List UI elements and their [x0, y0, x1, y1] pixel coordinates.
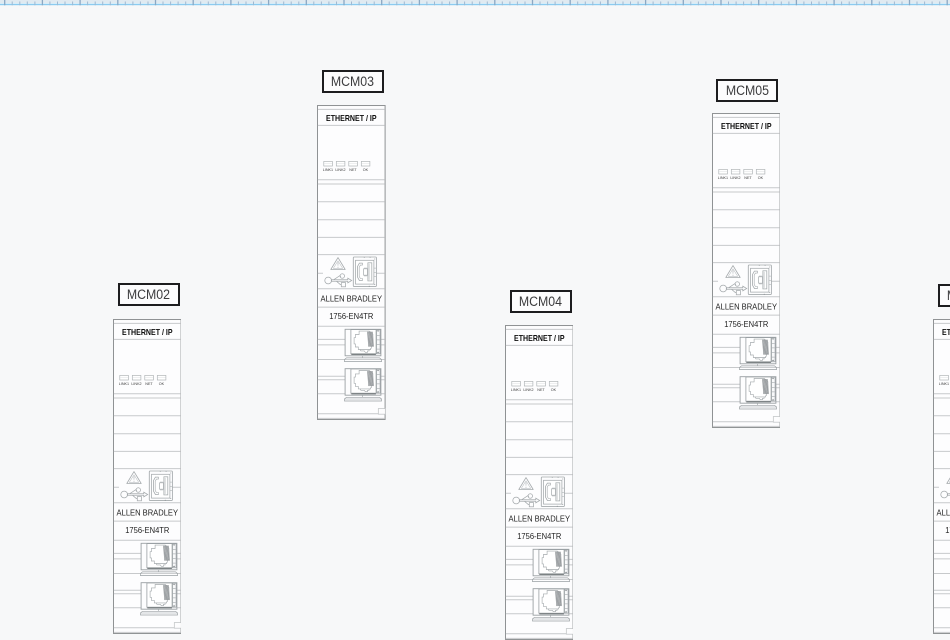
svg-text:LINK1: LINK1 — [119, 382, 129, 386]
svg-text:ETHERNET / IP: ETHERNET / IP — [721, 121, 772, 131]
svg-text:ETHERNET / IP: ETHERNET / IP — [514, 333, 565, 343]
svg-text:ALLEN BRADLEY: ALLEN BRADLEY — [936, 509, 950, 518]
svg-text:LINK2: LINK2 — [523, 388, 533, 392]
svg-text:ALLEN BRADLEY: ALLEN BRADLEY — [508, 515, 570, 524]
svg-text:NET: NET — [537, 388, 545, 392]
svg-text:OK: OK — [363, 168, 369, 172]
svg-text:OK: OK — [757, 176, 763, 180]
svg-text:1756-EN4TR: 1756-EN4TR — [945, 526, 950, 535]
svg-text:LINK2: LINK2 — [730, 176, 740, 180]
svg-text:LINK2: LINK2 — [131, 382, 141, 386]
svg-text:ALLEN BRADLEY: ALLEN BRADLEY — [116, 508, 178, 517]
svg-text:ETHERNET / IP: ETHERNET / IP — [326, 113, 377, 123]
svg-text:1756-EN4TR: 1756-EN4TR — [329, 312, 373, 321]
svg-text:LINK2: LINK2 — [336, 168, 346, 172]
svg-text:ALLEN BRADLEY: ALLEN BRADLEY — [321, 294, 383, 303]
svg-text:NET: NET — [349, 168, 357, 172]
svg-text:OK: OK — [159, 382, 165, 386]
svg-text:1756-EN4TR: 1756-EN4TR — [125, 525, 169, 534]
svg-text:1756-EN4TR: 1756-EN4TR — [724, 320, 768, 329]
svg-text:ALLEN BRADLEY: ALLEN BRADLEY — [715, 303, 777, 312]
svg-text:ETHERNET / IP: ETHERNET / IP — [942, 327, 950, 337]
svg-text:LINK1: LINK1 — [938, 382, 948, 386]
svg-text:NET: NET — [145, 382, 153, 386]
svg-text:LINK1: LINK1 — [510, 388, 520, 392]
svg-text:NET: NET — [744, 176, 752, 180]
svg-text:OK: OK — [550, 388, 556, 392]
svg-text:1756-EN4TR: 1756-EN4TR — [517, 532, 561, 541]
svg-text:LINK1: LINK1 — [323, 168, 333, 172]
svg-text:LINK1: LINK1 — [717, 176, 727, 180]
svg-text:ETHERNET / IP: ETHERNET / IP — [122, 326, 173, 336]
